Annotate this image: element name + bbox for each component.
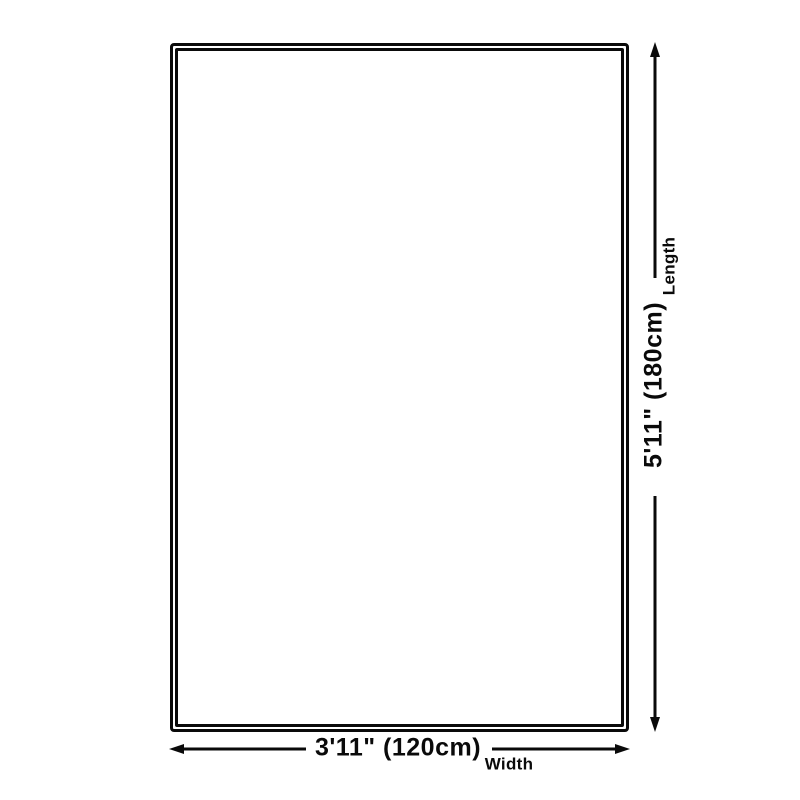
length-axis-label: Length: [661, 237, 678, 295]
length-dimension-label: 5'11" (180cm): [642, 302, 667, 468]
width-axis-label: Width: [485, 756, 534, 773]
product-outline: [170, 43, 629, 732]
arrow-left-icon: [169, 744, 184, 754]
arrow-right-icon: [615, 744, 630, 754]
dimension-diagram: 5'11" (180cm) Length 3'11" (120cm) Width: [0, 0, 800, 800]
arrow-up-icon: [650, 42, 660, 57]
arrow-down-icon: [650, 717, 660, 732]
width-dimension-label: 3'11" (120cm): [315, 736, 481, 761]
product-inner-border: [175, 48, 624, 727]
